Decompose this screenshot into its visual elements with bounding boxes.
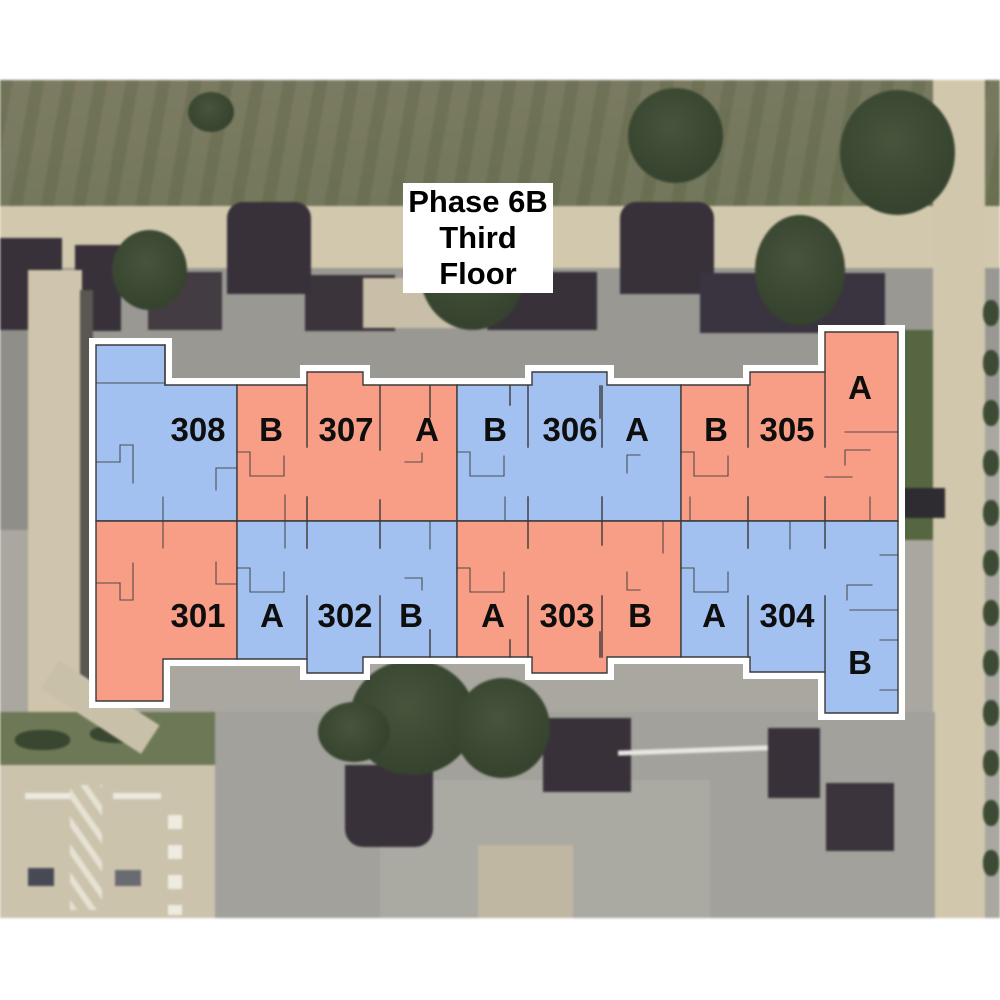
unit-307-a-label: A (415, 411, 439, 448)
title-line-1: Phase 6B (408, 184, 548, 220)
screenshot-stage: 308 B 307 A B 306 A B 305 A 301 A 302 B … (0, 0, 1000, 1000)
unit-305-label: 305 (759, 411, 814, 448)
unit-areas (96, 332, 898, 713)
unit-306-a-label: A (625, 411, 649, 448)
unit-306-label: 306 (542, 411, 597, 448)
floorplan-overlay: 308 B 307 A B 306 A B 305 A 301 A 302 B … (0, 0, 1000, 1000)
unit-302-a-label: A (260, 597, 284, 634)
title-line-2: Third (439, 220, 517, 256)
unit-308-label: 308 (170, 411, 225, 448)
unit-304-label: 304 (759, 597, 815, 634)
unit-302-label: 302 (317, 597, 372, 634)
unit-306-b-label: B (483, 411, 507, 448)
unit-301-label: 301 (170, 597, 225, 634)
unit-302-b-label: B (399, 597, 423, 634)
unit-307-b-label: B (259, 411, 283, 448)
unit-304-b-label: B (848, 644, 872, 681)
unit-307-label: 307 (318, 411, 373, 448)
unit-303-label: 303 (539, 597, 594, 634)
unit-305-b-label: B (704, 411, 728, 448)
unit-305-a-label: A (848, 369, 872, 406)
title-box: Phase 6B Third Floor (403, 183, 553, 293)
unit-303-b-label: B (628, 597, 652, 634)
unit-304-a-label: A (702, 597, 726, 634)
unit-303-a-label: A (481, 597, 505, 634)
title-line-3: Floor (439, 256, 517, 292)
